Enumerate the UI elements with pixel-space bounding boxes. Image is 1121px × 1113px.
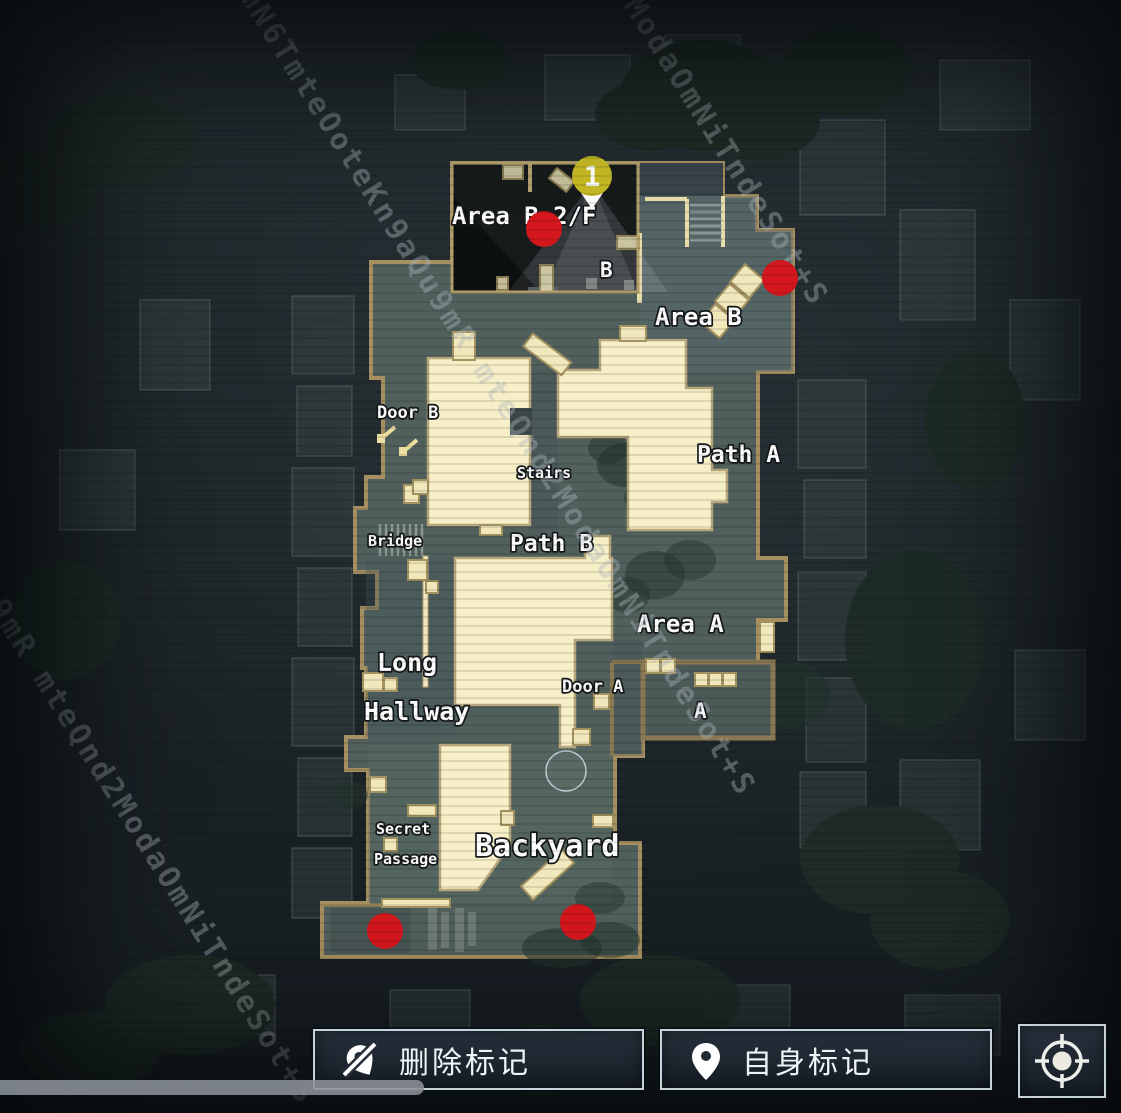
label-backyard: Backyard [475,829,620,864]
label-area-b: Area B [655,303,742,331]
red-mark-dot[interactable] [367,913,403,949]
label-path-a: Path A [697,442,780,468]
self-mark-label: 自身标记 [742,1038,874,1082]
label-bridge: Bridge [368,532,422,550]
self-mark-icon [686,1036,726,1084]
label-hallway: Hallway [364,697,469,726]
label-b: B [600,258,613,282]
red-mark-dot[interactable] [762,260,798,296]
ping-number: 1 [584,160,601,193]
label-door-a: Door A [562,677,623,697]
game-screen: Area B 2/F B Area B Door B Stairs Path A… [0,0,1121,1113]
delete-mark-icon [339,1036,383,1084]
delete-mark-label: 删除标记 [399,1038,531,1082]
bottom-drag-bar [0,1080,424,1095]
red-mark-dot[interactable] [560,904,596,940]
label-secret: Secret [376,820,430,838]
empty-circle-mark[interactable] [546,751,586,791]
locate-button[interactable] [1018,1024,1106,1098]
self-mark-button[interactable]: 自身标记 [660,1029,992,1090]
locate-icon [1033,1032,1091,1090]
red-mark-dot[interactable] [526,211,562,247]
label-long: Long [377,648,437,677]
label-passage: Passage [374,850,437,868]
label-door-b: Door B [377,403,438,423]
label-area-b-2f: Area B 2/F [452,202,597,230]
tactical-map[interactable]: Area B 2/F B Area B Door B Stairs Path A… [0,0,1121,1113]
